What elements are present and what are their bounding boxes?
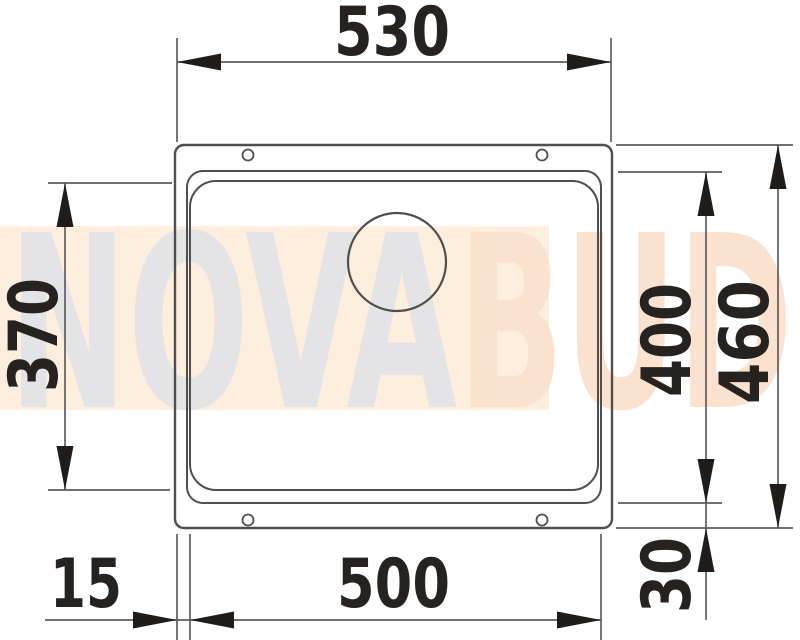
mounting-hole-top-right bbox=[537, 150, 548, 161]
arrowhead-down bbox=[770, 484, 787, 528]
dim-bowl-inner-depth-label: 370 bbox=[0, 278, 74, 392]
mounting-hole-bottom-right bbox=[537, 515, 548, 526]
arrowhead-right bbox=[567, 54, 611, 71]
arrowhead-down bbox=[698, 459, 715, 503]
arrowhead-left bbox=[177, 54, 221, 71]
arrowhead-down bbox=[57, 446, 74, 490]
arrowhead-right bbox=[133, 612, 177, 629]
dim-bowl-width-label: 500 bbox=[337, 545, 450, 624]
arrowhead-right bbox=[557, 612, 601, 629]
dim-rim-offset-left-label: 15 bbox=[50, 545, 122, 624]
dim-rim-offset-bottom-label: 30 bbox=[628, 537, 707, 613]
arrowhead-left bbox=[190, 612, 234, 629]
dim-overall-width-label: 530 bbox=[334, 0, 450, 72]
sink-dimension-drawing: NOVA BUD bbox=[0, 0, 800, 640]
dim-overall-depth-label: 460 bbox=[706, 280, 785, 404]
dim-bowl-depth-label: 400 bbox=[628, 283, 707, 397]
arrowhead-up bbox=[770, 145, 787, 189]
watermark-text-left: NOVA bbox=[8, 184, 457, 464]
mounting-hole-bottom-left bbox=[243, 515, 254, 526]
mounting-hole-top-left bbox=[243, 150, 254, 161]
